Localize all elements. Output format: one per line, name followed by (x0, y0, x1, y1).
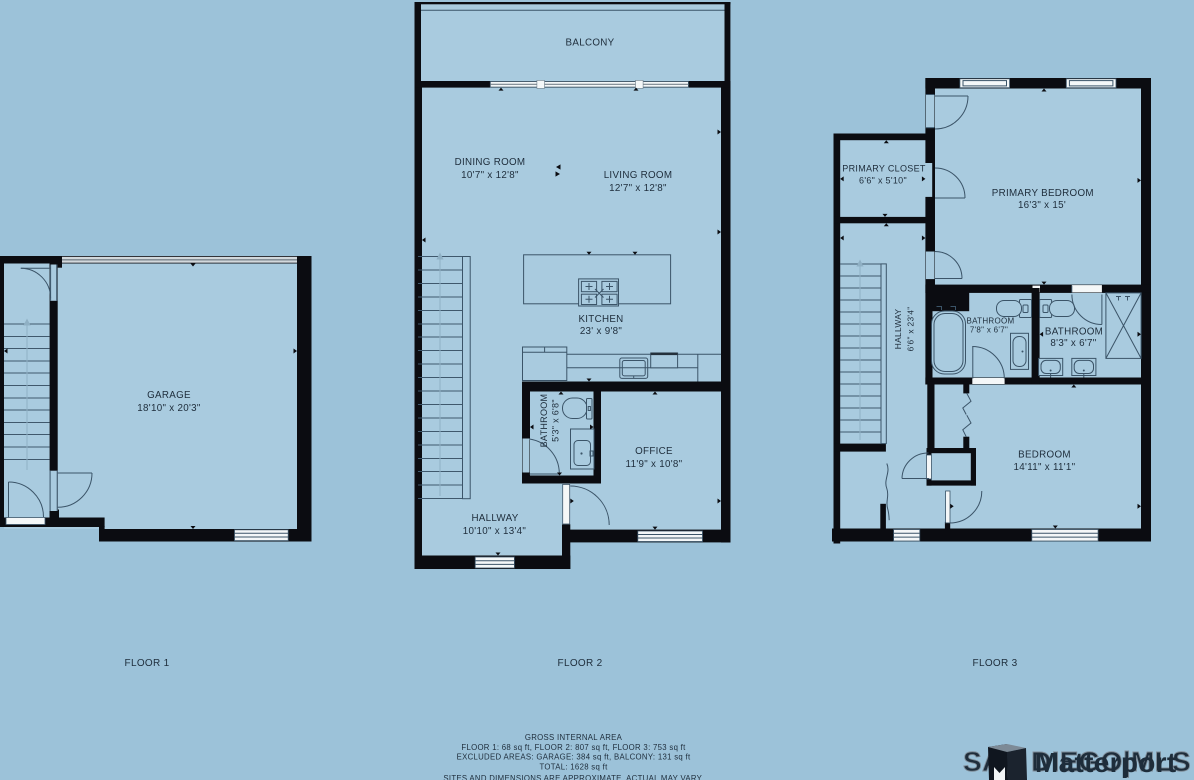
svg-text:6'6" x 23'4": 6'6" x 23'4" (906, 306, 916, 351)
svg-text:14'11" x 11'1": 14'11" x 11'1" (1014, 462, 1076, 473)
svg-text:BATHROOM: BATHROOM (966, 317, 1014, 326)
svg-text:KITCHEN: KITCHEN (578, 314, 623, 325)
svg-text:BATHROOM: BATHROOM (1045, 327, 1103, 338)
svg-text:11'9" x 10'8": 11'9" x 10'8" (626, 459, 683, 470)
svg-text:GARAGE: GARAGE (147, 390, 191, 401)
svg-text:GROSS INTERNAL AREA: GROSS INTERNAL AREA (525, 733, 623, 742)
svg-text:DINING ROOM: DINING ROOM (455, 157, 526, 168)
svg-text:SITES AND DIMENSIONS ARE APPRO: SITES AND DIMENSIONS ARE APPROXIMATE. AC… (443, 774, 703, 780)
svg-text:FLOOR 1: 68 sq ft, FLOOR 2: 80: FLOOR 1: 68 sq ft, FLOOR 2: 807 sq ft, F… (461, 743, 686, 752)
svg-text:LIVING ROOM: LIVING ROOM (604, 170, 673, 181)
svg-text:16'3" x 15': 16'3" x 15' (1018, 200, 1066, 211)
svg-text:6'6" x 5'10": 6'6" x 5'10" (859, 176, 907, 186)
svg-text:18'10" x 20'3": 18'10" x 20'3" (137, 403, 201, 414)
svg-text:HALLWAY: HALLWAY (471, 513, 518, 524)
svg-text:FLOOR 2: FLOOR 2 (558, 658, 603, 669)
svg-text:FLOOR 1: FLOOR 1 (125, 658, 170, 669)
svg-text:OFFICE: OFFICE (635, 446, 673, 457)
svg-text:EXCLUDED AREAS: GARAGE: 384 sq: EXCLUDED AREAS: GARAGE: 384 sq ft, BALCO… (457, 753, 691, 762)
svg-text:FLOOR 3: FLOOR 3 (973, 658, 1018, 669)
svg-text:TOTAL: 1628 sq ft: TOTAL: 1628 sq ft (539, 763, 608, 772)
svg-text:23' x 9'8": 23' x 9'8" (580, 326, 623, 337)
svg-text:BEDROOM: BEDROOM (1018, 450, 1071, 461)
svg-text:PRIMARY BEDROOM: PRIMARY BEDROOM (992, 188, 1094, 199)
svg-text:10'7" x 12'8": 10'7" x 12'8" (461, 170, 519, 181)
svg-text:Matterport: Matterport (1035, 747, 1176, 778)
svg-text:10'10" x 13'4": 10'10" x 13'4" (463, 526, 527, 537)
svg-text:BATHROOM: BATHROOM (539, 394, 549, 448)
svg-text:BALCONY: BALCONY (566, 38, 615, 49)
svg-text:HALLWAY: HALLWAY (893, 309, 903, 350)
svg-text:7'8" x 6'7": 7'8" x 6'7" (970, 326, 1008, 335)
svg-text:5'3" x 6'8": 5'3" x 6'8" (551, 399, 561, 442)
svg-text:12'7" x 12'8": 12'7" x 12'8" (609, 183, 667, 194)
svg-text:8'3" x 6'7": 8'3" x 6'7" (1050, 338, 1096, 349)
svg-text:PRIMARY CLOSET: PRIMARY CLOSET (842, 164, 926, 174)
